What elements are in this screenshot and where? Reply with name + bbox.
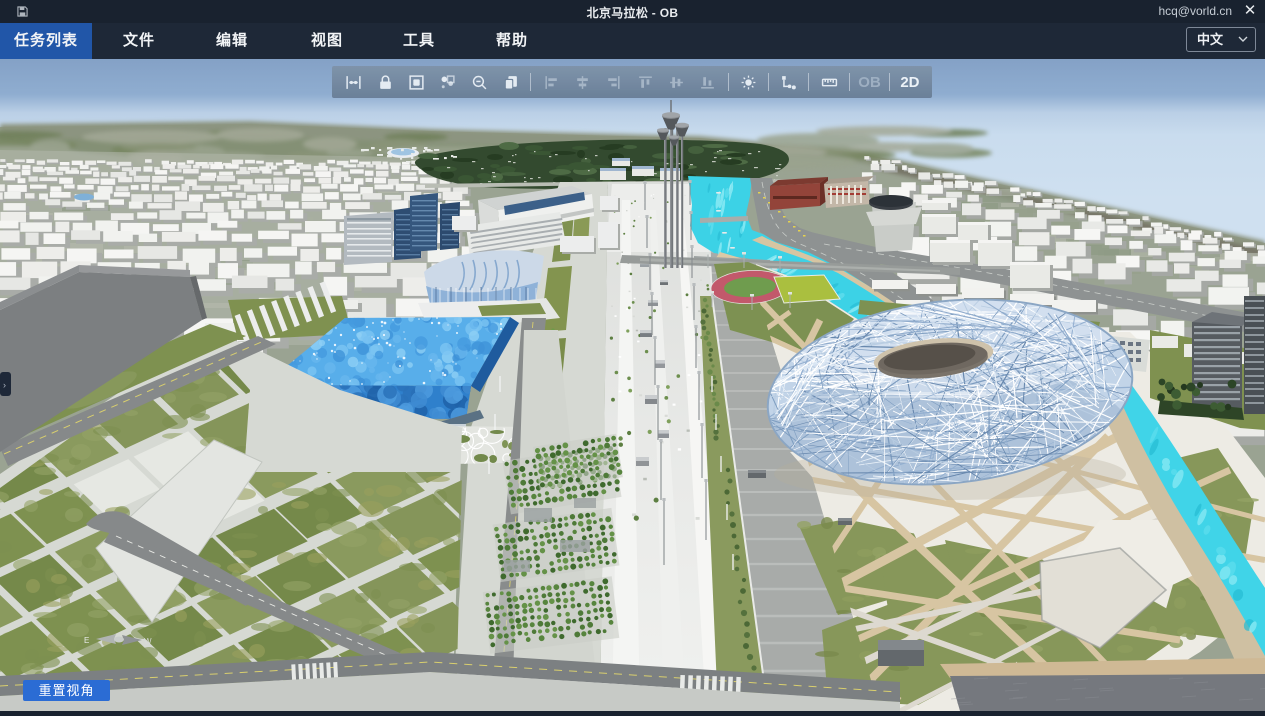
svg-text:›: › [3,380,6,390]
svg-text:E: E [84,636,89,645]
svg-text:W: W [144,637,152,646]
